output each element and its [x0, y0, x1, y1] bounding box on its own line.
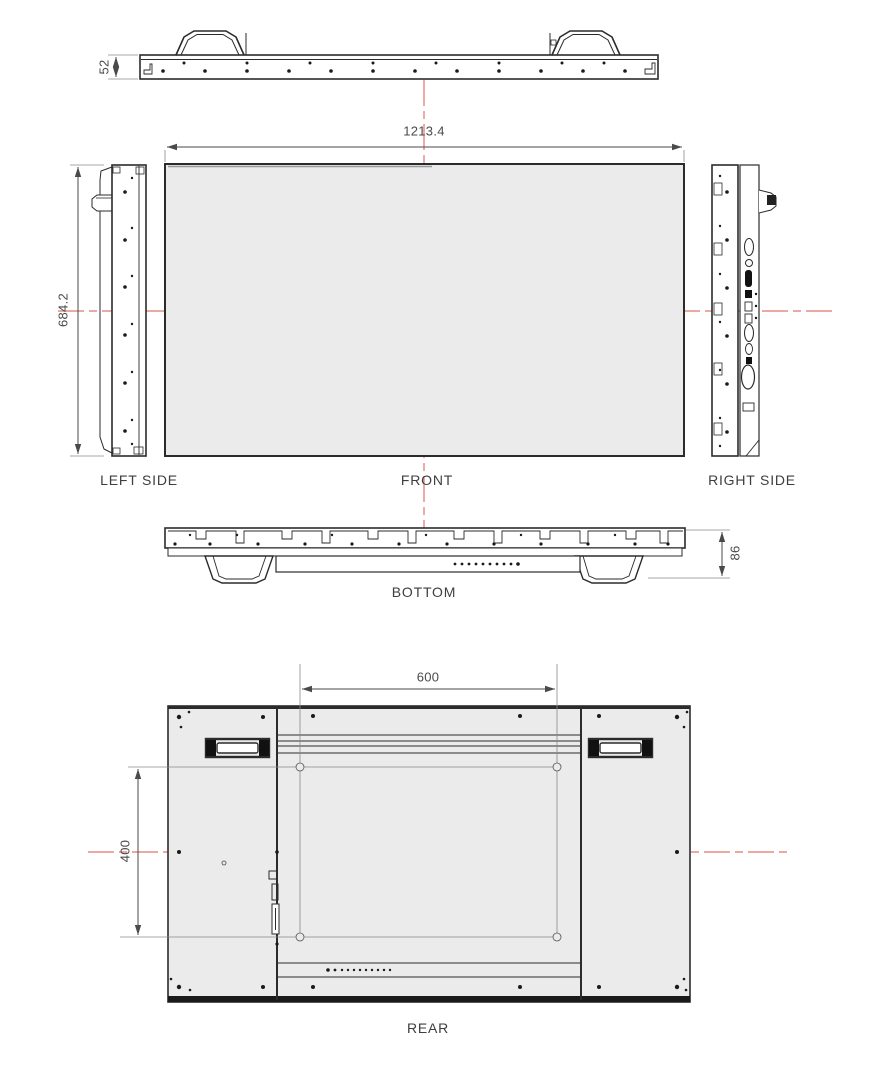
front-panel	[165, 164, 684, 456]
rear-view-label: REAR	[407, 1020, 449, 1036]
rear-view	[168, 706, 690, 1002]
switch	[746, 357, 752, 364]
right-connector-panel	[740, 165, 759, 456]
front-view	[165, 164, 684, 456]
front-view-label: FRONT	[401, 472, 453, 488]
dim-top-height	[108, 55, 138, 79]
top-view	[140, 31, 658, 79]
vesa-hole-bottom-right	[553, 933, 561, 941]
hdmi-port	[745, 270, 752, 287]
dim-mount-height-value: 400	[118, 840, 133, 863]
dim-bottom-depth-value: 86	[728, 545, 743, 560]
vesa-hole-bottom-left	[296, 933, 304, 941]
vesa-hole-top-right	[553, 763, 561, 771]
usb-port	[745, 290, 752, 298]
dim-front-width-value: 1213.4	[403, 124, 445, 139]
left-side-view	[92, 165, 146, 456]
drawing-linework	[0, 0, 876, 1070]
dim-front-height-value: 684.2	[56, 293, 71, 327]
right-side-view-label: RIGHT SIDE	[708, 472, 796, 488]
dim-mount-width-value: 600	[417, 670, 440, 685]
left-handle-bracket	[92, 195, 112, 211]
bottom-chassis-plate	[276, 556, 580, 572]
bottom-view-label: BOTTOM	[392, 584, 456, 600]
bottom-view	[165, 528, 685, 583]
dimension-drawing-sheet: 52 1213.4 684.2 86 600 400 LEFT SIDE FRO…	[0, 0, 876, 1070]
left-side-view-label: LEFT SIDE	[100, 472, 178, 488]
vesa-hole-top-left	[296, 763, 304, 771]
dim-top-height-value: 52	[97, 59, 112, 74]
